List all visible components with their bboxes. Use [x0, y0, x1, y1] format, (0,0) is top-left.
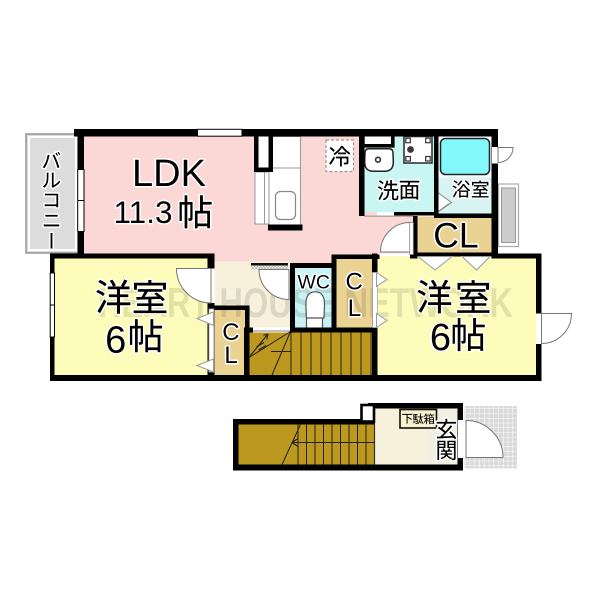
svg-text:L: L: [224, 342, 237, 369]
svg-text:LDK: LDK: [132, 153, 206, 195]
svg-text:WC: WC: [297, 272, 330, 294]
svg-text:C: C: [346, 269, 363, 296]
svg-text:CL: CL: [433, 216, 478, 256]
svg-text:11.3: 11.3: [114, 194, 173, 230]
svg-text:6: 6: [430, 317, 451, 359]
svg-text:6: 6: [105, 320, 126, 362]
svg-text:L: L: [348, 295, 361, 322]
